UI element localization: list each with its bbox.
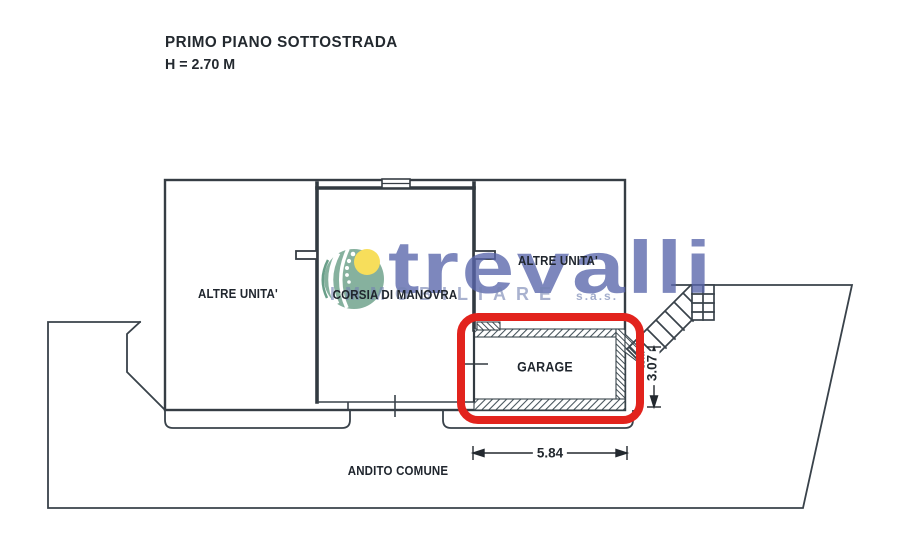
top-opening-symbol [382,179,410,188]
room-label-altre-unita-left: ALTRE UNITA' [198,287,278,301]
plan-height-note: H = 2.70 M [165,56,398,73]
plan-title: PRIMO PIANO SOTTOSTRADA [165,34,398,52]
dimension-value-garage-width: 5.84 [533,446,567,461]
room-label-corsia-di-manovra: CORSIA DI MANOVRA [333,288,458,302]
area-label-andito-comune: ANDITO COMUNE [348,464,449,478]
floor-plan-page: trevalli IMMOBILIARE s.a.s. PRIMO PIANO … [0,0,900,553]
floor-plan-drawing [0,0,900,553]
plan-title-block: PRIMO PIANO SOTTOSTRADA H = 2.70 M [165,34,410,73]
dimension-value-garage-depth: 3.07 [645,351,660,385]
room-label-altre-unita-right: ALTRE UNITA' [518,254,598,268]
room-label-garage: GARAGE [517,360,573,375]
